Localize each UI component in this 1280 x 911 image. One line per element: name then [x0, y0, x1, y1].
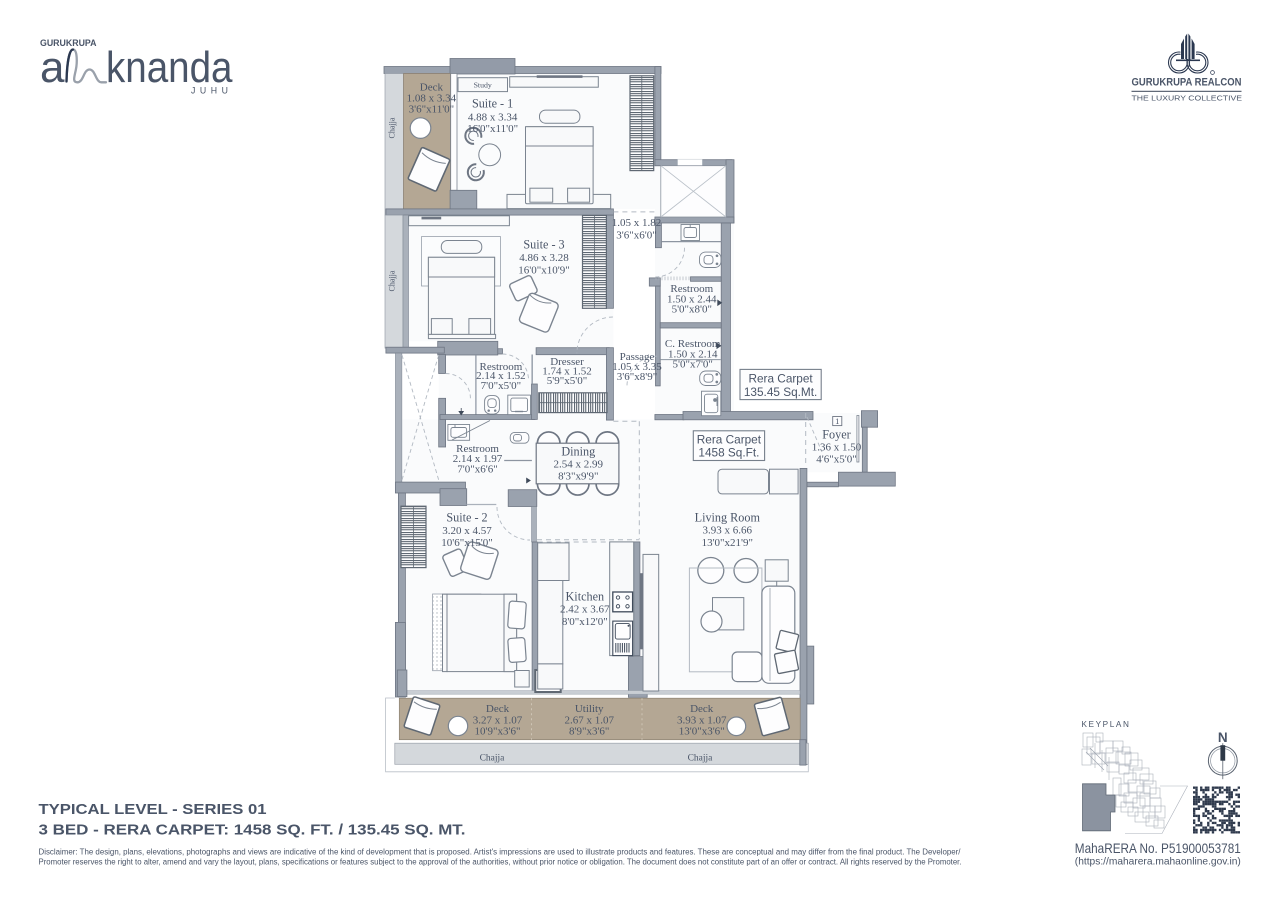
svg-text:13'0"x3'6": 13'0"x3'6" [679, 725, 725, 737]
svg-text:1: 1 [835, 416, 839, 426]
svg-text:2.54 x 2.99: 2.54 x 2.99 [554, 458, 604, 470]
svg-text:1.36 x 1.50: 1.36 x 1.50 [812, 442, 862, 454]
svg-text:Rera Carpet: Rera Carpet [697, 432, 762, 446]
svg-text:Disclaimer: The design, plans,: Disclaimer: The design, plans, elevation… [39, 848, 962, 857]
svg-text:2.42 x 3.67: 2.42 x 3.67 [560, 604, 610, 616]
svg-text:8'9"x3'6": 8'9"x3'6" [569, 725, 609, 737]
svg-text:135.45 Sq.Mt.: 135.45 Sq.Mt. [744, 385, 817, 399]
svg-text:4'6"x5'0": 4'6"x5'0" [816, 453, 856, 465]
svg-text:Study: Study [474, 81, 492, 90]
svg-text:Living Room: Living Room [695, 510, 761, 524]
svg-text:3'6"x6'0": 3'6"x6'0" [616, 229, 656, 241]
svg-text:(https://maharera.mahaonline.g: (https://maharera.mahaonline.gov.in) [1075, 857, 1241, 868]
svg-text:4.86 x 3.28: 4.86 x 3.28 [519, 252, 569, 264]
svg-text:5'9"x5'0": 5'9"x5'0" [547, 375, 587, 387]
svg-text:Deck: Deck [690, 703, 714, 715]
svg-text:Chajja: Chajja [388, 117, 397, 138]
svg-text:8'3"x9'9": 8'3"x9'9" [558, 471, 598, 483]
svg-text:4.88 x 3.34: 4.88 x 3.34 [468, 111, 518, 123]
svg-text:GURUKRUPA REALCON: GURUKRUPA REALCON [1132, 77, 1242, 89]
svg-text:JUHU: JUHU [191, 86, 233, 97]
svg-text:Suite - 2: Suite - 2 [446, 511, 487, 525]
svg-text:Rera Carpet: Rera Carpet [748, 371, 813, 385]
svg-text:a: a [40, 43, 65, 92]
svg-text:3'6"x8'9": 3'6"x8'9" [617, 371, 657, 383]
svg-text:3.93 x 6.66: 3.93 x 6.66 [703, 525, 753, 537]
svg-text:Chajja: Chajja [480, 754, 506, 764]
svg-text:Chajja: Chajja [387, 270, 396, 291]
svg-text:5'0"x8'0": 5'0"x8'0" [672, 303, 712, 315]
svg-text:Dining: Dining [561, 444, 595, 458]
svg-text:Suite - 3: Suite - 3 [523, 238, 564, 252]
svg-text:7'0"x5'0": 7'0"x5'0" [481, 380, 521, 392]
svg-text:Kitchen: Kitchen [566, 589, 605, 603]
svg-text:Suite - 1: Suite - 1 [472, 97, 513, 111]
svg-text:16'0"x11'0": 16'0"x11'0" [467, 123, 518, 135]
svg-text:13'0"x21'9": 13'0"x21'9" [702, 537, 753, 549]
svg-text:7'0"x6'6": 7'0"x6'6" [457, 464, 497, 476]
svg-text:Promoter reserves the right to: Promoter reserves the right to alter, am… [39, 857, 962, 866]
svg-text:16'0"x10'9": 16'0"x10'9" [518, 265, 569, 277]
svg-text:Deck: Deck [486, 703, 510, 715]
svg-text:1.05 x 1.82: 1.05 x 1.82 [612, 217, 662, 229]
svg-text:THE LUXURY COLLECTIVE: THE LUXURY COLLECTIVE [1132, 93, 1243, 102]
svg-text:Foyer: Foyer [822, 428, 850, 442]
svg-text:5'0"x7'0": 5'0"x7'0" [672, 358, 712, 370]
svg-text:1458 Sq.Ft.: 1458 Sq.Ft. [698, 446, 759, 460]
svg-text:3.20 x 4.57: 3.20 x 4.57 [442, 525, 492, 537]
svg-text:Utility: Utility [575, 703, 604, 715]
svg-text:KEYPLAN: KEYPLAN [1082, 720, 1131, 729]
svg-text:10'6"x15'0": 10'6"x15'0" [441, 537, 492, 549]
svg-text:TYPICAL LEVEL - SERIES 01: TYPICAL LEVEL - SERIES 01 [39, 801, 268, 818]
svg-text:N: N [1218, 730, 1228, 745]
svg-text:Chajja: Chajja [688, 754, 714, 764]
svg-text:MahaRERA No. P51900053781: MahaRERA No. P51900053781 [1075, 841, 1241, 856]
svg-text:3 BED - RERA CARPET: 1458 SQ.: 3 BED - RERA CARPET: 1458 SQ. FT. / 135.… [39, 821, 466, 838]
svg-text:3'6"x11'0": 3'6"x11'0" [409, 104, 455, 116]
svg-text:10'9"x3'6": 10'9"x3'6" [475, 725, 521, 737]
svg-text:8'0"x12'0": 8'0"x12'0" [562, 616, 608, 628]
